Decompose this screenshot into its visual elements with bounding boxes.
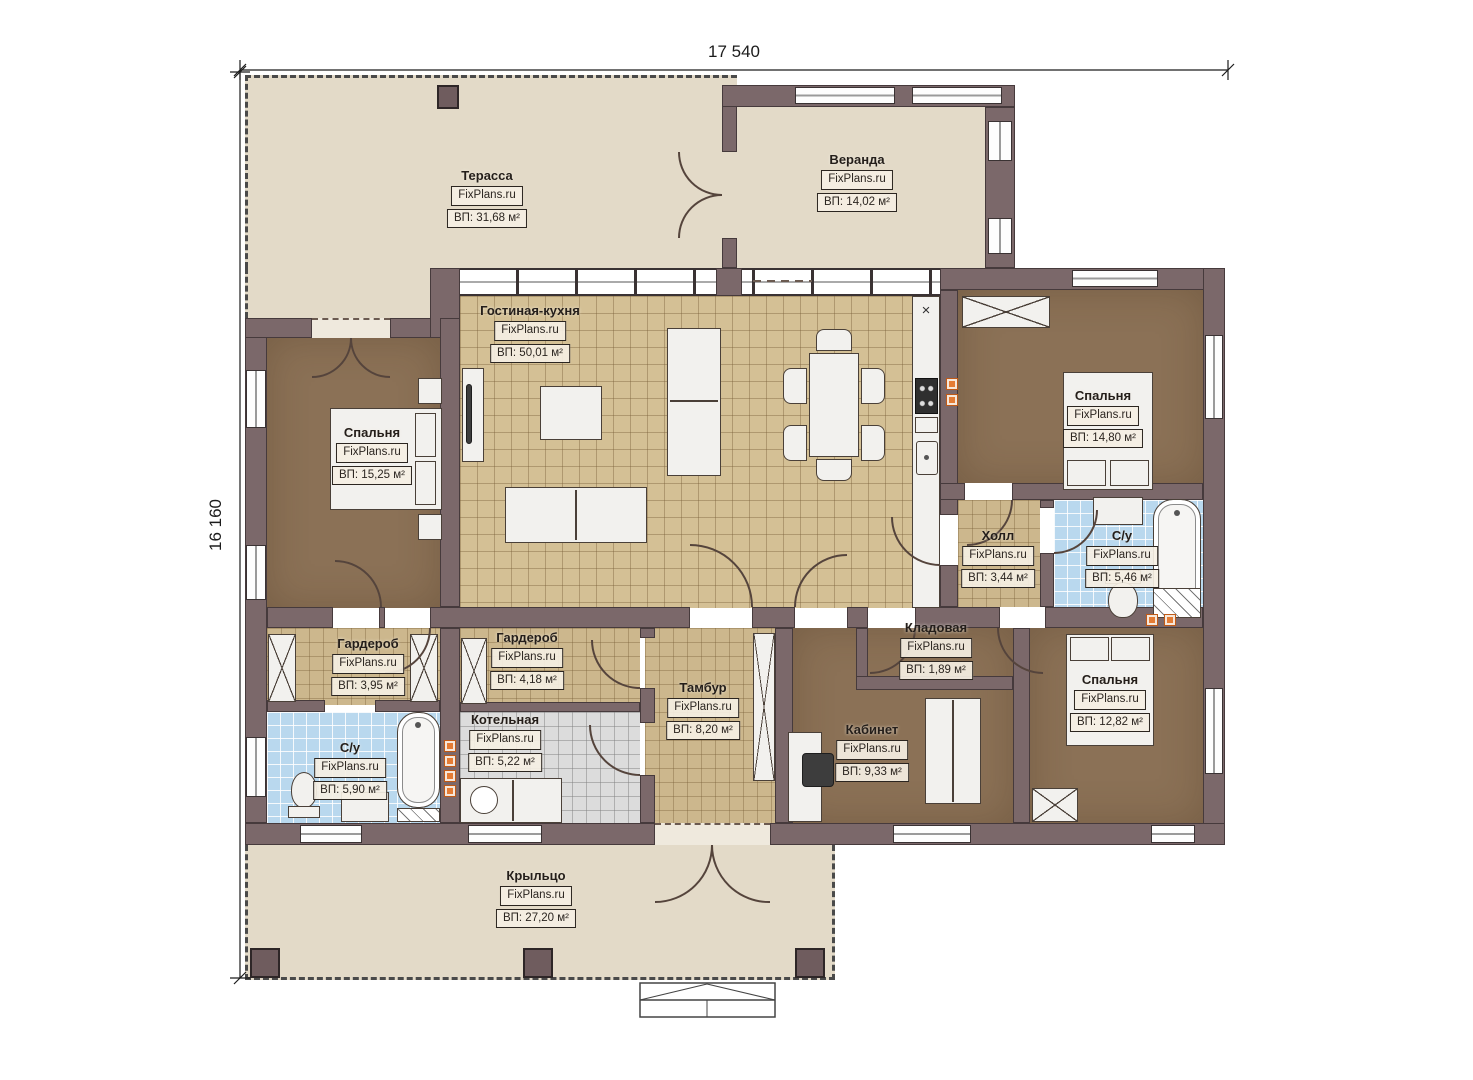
window	[246, 545, 266, 600]
room-name: Гардероб	[496, 630, 557, 645]
terrace-column	[437, 85, 459, 109]
dimension-width: 17 540	[708, 42, 760, 62]
room-brand-watermark: FixPlans.ru	[836, 740, 908, 760]
window	[988, 121, 1012, 161]
window	[795, 87, 895, 104]
room-label-veranda: Веранда FixPlans.ru ВП: 14,02 м²	[817, 152, 897, 212]
room-area: ВП: 8,20 м²	[666, 721, 740, 741]
room-brand-watermark: FixPlans.ru	[900, 638, 972, 658]
room-brand-watermark: FixPlans.ru	[469, 730, 541, 750]
room-area: ВП: 5,90 м²	[313, 781, 387, 801]
room-brand-watermark: FixPlans.ru	[491, 648, 563, 668]
room-name: С/у	[340, 740, 360, 755]
window	[988, 218, 1012, 254]
window	[468, 825, 542, 843]
room-area: ВП: 15,25 м²	[332, 466, 412, 486]
room-brand-watermark: FixPlans.ru	[1086, 546, 1158, 566]
vent-marker	[444, 770, 456, 782]
shower-corner	[1153, 588, 1201, 618]
floor-terrace-lower	[245, 268, 430, 318]
room-name: Спальня	[344, 425, 400, 440]
chair	[861, 425, 885, 461]
window	[1072, 270, 1158, 287]
chair	[783, 425, 807, 461]
sofa	[667, 328, 721, 476]
room-label-living-kitchen: Гостиная-кухня FixPlans.ru ВП: 50,01 м²	[480, 303, 580, 363]
room-name: С/у	[1112, 528, 1132, 543]
vent-marker	[444, 740, 456, 752]
room-area: ВП: 12,82 м²	[1070, 713, 1150, 733]
vent-marker	[1146, 614, 1158, 626]
window	[912, 87, 1002, 104]
room-name: Крыльцо	[506, 868, 565, 883]
room-brand-watermark: FixPlans.ru	[962, 546, 1034, 566]
room-area: ВП: 4,18 м²	[490, 671, 564, 691]
vent-marker	[946, 378, 958, 390]
wall	[1013, 628, 1030, 823]
room-name: Котельная	[471, 712, 539, 727]
room-label-boiler-room: Котельная FixPlans.ru ВП: 5,22 м²	[468, 712, 542, 772]
room-area: ВП: 14,02 м²	[817, 193, 897, 213]
room-brand-watermark: FixPlans.ru	[1067, 406, 1139, 426]
room-brand-watermark: FixPlans.ru	[821, 170, 893, 190]
glass-wall	[460, 268, 940, 296]
wall	[940, 483, 965, 500]
window	[246, 370, 266, 428]
wall	[460, 702, 640, 712]
room-area: ВП: 50,01 м²	[490, 344, 570, 364]
room-brand-watermark: FixPlans.ru	[667, 698, 739, 718]
room-brand-watermark: FixPlans.ru	[500, 886, 572, 906]
window	[1205, 335, 1223, 419]
room-area: ВП: 5,22 м²	[468, 753, 542, 773]
room-label-porch: Крыльцо FixPlans.ru ВП: 27,20 м²	[496, 868, 576, 928]
room-area: ВП: 9,33 м²	[835, 763, 909, 783]
room-name: Спальня	[1082, 672, 1138, 687]
room-label-hall: Холл FixPlans.ru ВП: 3,44 м²	[961, 528, 1035, 588]
bathroom-sink	[1093, 497, 1143, 525]
room-name: Веранда	[829, 152, 884, 167]
room-label-bedroom-left: Спальня FixPlans.ru ВП: 15,25 м²	[332, 425, 412, 485]
wall	[379, 607, 385, 628]
room-brand-watermark: FixPlans.ru	[494, 321, 566, 341]
toilet-tank	[288, 806, 320, 818]
vent-marker	[444, 755, 456, 767]
wall	[856, 628, 868, 683]
fridge-icon: ×	[914, 300, 938, 322]
room-label-bedroom-right-top: Спальня FixPlans.ru ВП: 14,80 м²	[1063, 388, 1143, 448]
washing-machine	[470, 786, 498, 814]
wall	[847, 607, 868, 628]
chair	[816, 329, 852, 351]
room-label-storage: Кладовая FixPlans.ru ВП: 1,89 м²	[899, 620, 973, 680]
room-label-bathroom-left: С/у FixPlans.ru ВП: 5,90 м²	[313, 740, 387, 800]
room-brand-watermark: FixPlans.ru	[1074, 690, 1146, 710]
wardrobe-cabinet	[410, 634, 438, 702]
room-area: ВП: 27,20 м²	[496, 909, 576, 929]
wardrobe-cabinet	[753, 633, 775, 781]
room-area: ВП: 14,80 м²	[1063, 429, 1143, 449]
sink-drain	[924, 455, 929, 460]
wall	[640, 628, 655, 638]
porch-column	[795, 948, 825, 978]
pillow	[1070, 637, 1109, 661]
room-area: ВП: 3,95 м²	[331, 677, 405, 697]
wall	[640, 688, 655, 723]
stove	[915, 378, 938, 414]
room-brand-watermark: FixPlans.ru	[336, 443, 408, 463]
room-brand-watermark: FixPlans.ru	[314, 758, 386, 778]
room-name: Кабинет	[846, 722, 899, 737]
wall	[752, 607, 795, 628]
office-chair	[802, 753, 834, 787]
porch-column	[523, 948, 553, 978]
nightstand	[418, 378, 442, 404]
wall	[940, 565, 958, 607]
cabinet-divider	[952, 700, 954, 802]
room-label-wardrobe-mid: Гардероб FixPlans.ru ВП: 4,18 м²	[490, 630, 564, 690]
room-area: ВП: 31,68 м²	[447, 209, 527, 229]
room-label-bedroom-right-bottom: Спальня FixPlans.ru ВП: 12,82 м²	[1070, 672, 1150, 732]
room-area: ВП: 5,46 м²	[1085, 569, 1159, 589]
pillow	[415, 461, 436, 505]
room-area: ВП: 3,44 м²	[961, 569, 1035, 589]
room-label-vestibule: Тамбур FixPlans.ru ВП: 8,20 м²	[666, 680, 740, 740]
window	[1151, 825, 1195, 843]
porch-column	[250, 948, 280, 978]
room-label-wardrobe-left: Гардероб FixPlans.ru ВП: 3,95 м²	[331, 636, 405, 696]
room-area: ВП: 1,89 м²	[899, 661, 973, 681]
pillow	[1111, 637, 1150, 661]
room-brand-watermark: FixPlans.ru	[332, 654, 404, 674]
tub-drain	[1174, 510, 1180, 516]
wardrobe-cabinet	[1032, 788, 1078, 822]
room-label-office: Кабинет FixPlans.ru ВП: 9,33 м²	[835, 722, 909, 782]
room-name: Кладовая	[905, 620, 967, 635]
wall	[640, 775, 655, 823]
wall	[430, 607, 690, 628]
tv	[466, 384, 472, 444]
dimension-height: 16 160	[206, 499, 226, 551]
window	[1205, 688, 1223, 774]
room-name: Гардероб	[337, 636, 398, 651]
wardrobe-cabinet	[461, 638, 487, 704]
window	[893, 825, 971, 843]
entry-door-opening	[655, 823, 770, 845]
pillow	[415, 413, 436, 457]
window	[246, 737, 266, 797]
oven	[915, 417, 938, 433]
chair	[861, 368, 885, 404]
room-label-terrace: Терасса FixPlans.ru ВП: 31,68 м²	[447, 168, 527, 228]
wall	[1040, 553, 1054, 607]
room-brand-watermark: FixPlans.ru	[451, 186, 523, 206]
room-name: Гостиная-кухня	[480, 303, 580, 318]
wardrobe-cabinet	[962, 296, 1050, 328]
room-label-bathroom-right: С/у FixPlans.ru ВП: 5,46 м²	[1085, 528, 1159, 588]
nightstand	[418, 514, 442, 540]
door-opening	[312, 318, 390, 338]
wall	[1040, 500, 1054, 508]
wall	[722, 238, 737, 268]
floor-plan: ×	[0, 0, 1473, 1080]
room-name: Тамбур	[679, 680, 726, 695]
wardrobe-cabinet	[268, 634, 296, 702]
hatch-corner	[397, 808, 440, 822]
vent-marker	[444, 785, 456, 797]
room-name: Спальня	[1075, 388, 1131, 403]
tub-drain	[415, 722, 421, 728]
sofa-cushion-divider	[670, 400, 718, 402]
window	[300, 825, 362, 843]
vent-marker	[946, 394, 958, 406]
wall	[440, 318, 460, 607]
dining-table	[809, 353, 859, 457]
vent-marker	[1164, 614, 1176, 626]
coffee-table	[540, 386, 602, 440]
chair	[816, 459, 852, 481]
counter-divider	[512, 780, 514, 821]
sofa-cushion-divider	[575, 490, 577, 540]
pillow	[1067, 460, 1106, 486]
chair	[783, 368, 807, 404]
wall	[245, 318, 312, 338]
pillow	[1110, 460, 1149, 486]
wall	[267, 607, 333, 628]
wall	[716, 268, 742, 296]
room-name: Терасса	[461, 168, 513, 183]
room-name: Холл	[982, 528, 1015, 543]
stairs	[640, 983, 775, 1017]
